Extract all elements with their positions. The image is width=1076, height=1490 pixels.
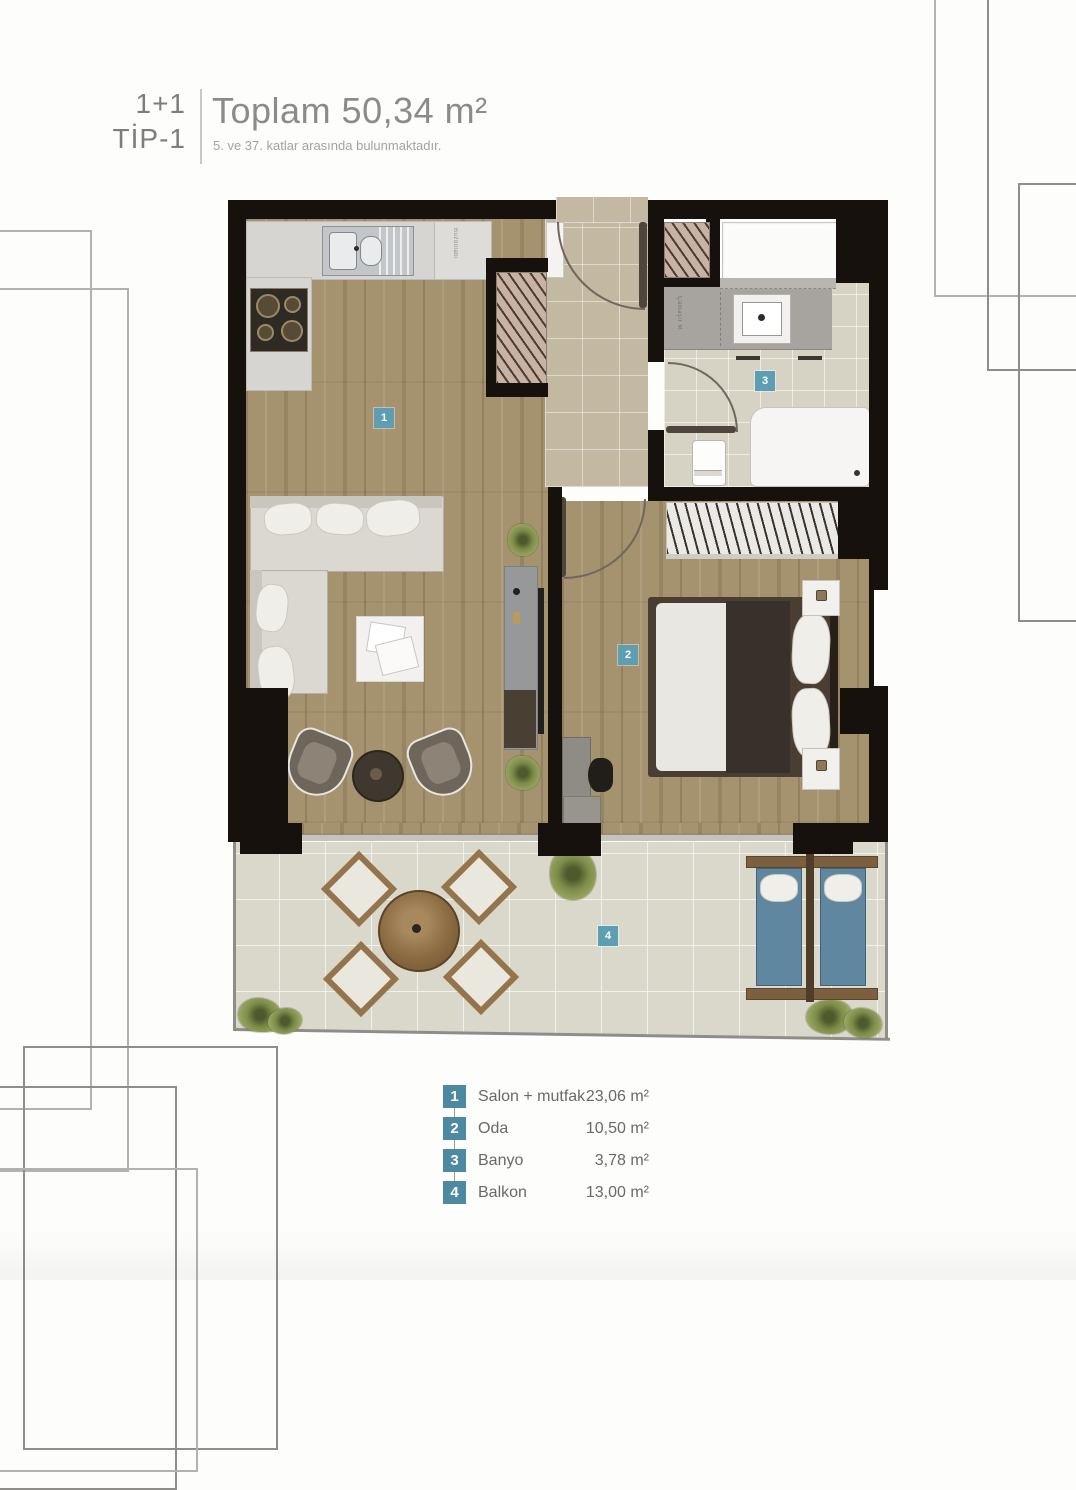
sliding-door bbox=[302, 834, 538, 841]
wardrobe bbox=[666, 502, 840, 556]
bed-mattress bbox=[656, 603, 728, 771]
legend-badge-4: 4 bbox=[443, 1181, 466, 1204]
shower-drain bbox=[854, 470, 860, 476]
sofa-pillow bbox=[315, 501, 365, 536]
cooktop-burner bbox=[256, 294, 280, 318]
wall-column bbox=[228, 688, 288, 824]
sun-lounger-spine bbox=[806, 854, 814, 1002]
deco-rect bbox=[1018, 183, 1076, 622]
wall-column bbox=[840, 688, 869, 734]
desk-chair bbox=[588, 758, 613, 792]
nightstand-lamp bbox=[816, 590, 827, 601]
wall bbox=[648, 200, 869, 219]
legend-row: 2 Oda 10,50 m² bbox=[443, 1117, 649, 1140]
plant bbox=[506, 756, 540, 790]
tv-unit-cabinet bbox=[504, 690, 536, 748]
entry-threshold bbox=[556, 197, 648, 223]
kitchen-sink-basin bbox=[329, 232, 357, 270]
legend-badge-1: 1 bbox=[443, 1085, 466, 1108]
legend-label-1: Salon + mutfak bbox=[478, 1088, 586, 1106]
kitchen-fridge bbox=[434, 221, 492, 280]
legend-area-1: 23,06 m² bbox=[586, 1088, 649, 1106]
room-badge-banyo: 3 bbox=[755, 371, 775, 391]
legend-area-4: 13,00 m² bbox=[586, 1184, 649, 1202]
room-badge-oda: 2 bbox=[618, 645, 638, 665]
deco-rect bbox=[0, 288, 129, 1172]
page-bottom-fade bbox=[0, 1230, 1076, 1280]
legend-area-3: 3,78 m² bbox=[595, 1152, 649, 1170]
wall-tab bbox=[240, 842, 302, 854]
legend: 1 Salon + mutfak 23,06 m² 2 Oda 10,50 m²… bbox=[443, 1085, 649, 1213]
kitchen-sink-basin bbox=[360, 236, 382, 266]
wall bbox=[838, 501, 869, 559]
legend-badge-3: 3 bbox=[443, 1149, 466, 1172]
wall bbox=[836, 219, 869, 283]
wall bbox=[793, 823, 888, 842]
sliding-door bbox=[601, 834, 793, 841]
sun-lounger-pillow bbox=[824, 874, 862, 902]
bath-faucet bbox=[758, 314, 765, 321]
bed-duvet bbox=[726, 601, 790, 773]
toilet-seat-line bbox=[694, 470, 722, 476]
page-title: Toplam 50,34 m² bbox=[212, 90, 488, 132]
legend-row: 1 Salon + mutfak 23,06 m² bbox=[443, 1085, 649, 1108]
cooktop-burner bbox=[281, 320, 303, 342]
wardrobe-shelf bbox=[666, 554, 838, 559]
wall bbox=[648, 487, 869, 501]
legend-label-4: Balkon bbox=[478, 1184, 586, 1202]
wall bbox=[648, 200, 664, 362]
cooktop-burner bbox=[257, 324, 274, 341]
unit-type-bottom: TİP-1 bbox=[100, 121, 186, 156]
balcony-table-center bbox=[412, 924, 421, 933]
wall bbox=[869, 200, 888, 842]
kitchen-appliance-label: Buzdolabı bbox=[452, 228, 458, 274]
wall bbox=[228, 823, 302, 842]
sun-lounger-pillow bbox=[760, 874, 798, 902]
legend-area-2: 10,50 m² bbox=[586, 1120, 649, 1138]
plant bbox=[508, 524, 538, 556]
wall bbox=[548, 487, 562, 823]
wall-tab bbox=[793, 842, 853, 854]
legend-row: 4 Balkon 13,00 m² bbox=[443, 1181, 649, 1204]
low-cabinet bbox=[563, 796, 601, 825]
room-badge-balkon: 4 bbox=[598, 926, 618, 946]
unit-type: 1+1 TİP-1 bbox=[100, 86, 186, 156]
legend-label-3: Banyo bbox=[478, 1152, 595, 1170]
kitchen-faucet bbox=[354, 246, 359, 251]
page-subtitle: 5. ve 37. katlar arasında bulunmaktadır. bbox=[213, 138, 441, 153]
nightstand-lamp bbox=[816, 760, 827, 771]
towel-rail bbox=[798, 356, 822, 360]
deco-rect bbox=[0, 1168, 198, 1472]
towel-rail bbox=[736, 356, 760, 360]
room-badge-salon: 1 bbox=[374, 408, 394, 428]
legend-badge-2: 2 bbox=[443, 1117, 466, 1140]
wall bbox=[486, 258, 496, 397]
wall bbox=[228, 200, 556, 219]
wall bbox=[538, 823, 601, 842]
balcony-border-left bbox=[233, 842, 236, 1030]
entry-closet bbox=[664, 222, 710, 278]
washing-machine bbox=[722, 222, 838, 280]
header-divider bbox=[200, 89, 202, 164]
tv-unit-item bbox=[513, 588, 520, 595]
wall-tab bbox=[538, 842, 601, 856]
tv-screen bbox=[538, 588, 544, 734]
washer-counter-edge bbox=[720, 278, 836, 289]
tv-unit-item bbox=[513, 612, 520, 624]
unit-type-top: 1+1 bbox=[100, 86, 186, 121]
legend-row: 3 Banyo 3,78 m² bbox=[443, 1149, 649, 1172]
wall-notch bbox=[874, 590, 888, 686]
shower bbox=[750, 407, 870, 487]
balcony-border-right bbox=[885, 842, 888, 1038]
bath-counter-divider bbox=[720, 292, 722, 346]
bed-headboard bbox=[830, 605, 838, 769]
bush bbox=[844, 1008, 882, 1038]
bath-appliance-label: Çamaşır M. bbox=[676, 296, 682, 342]
toilet bbox=[692, 440, 726, 486]
cooktop-burner bbox=[284, 296, 301, 313]
legend-label-2: Oda bbox=[478, 1120, 586, 1138]
side-table-detail bbox=[370, 768, 382, 780]
coat-closet bbox=[496, 272, 547, 385]
